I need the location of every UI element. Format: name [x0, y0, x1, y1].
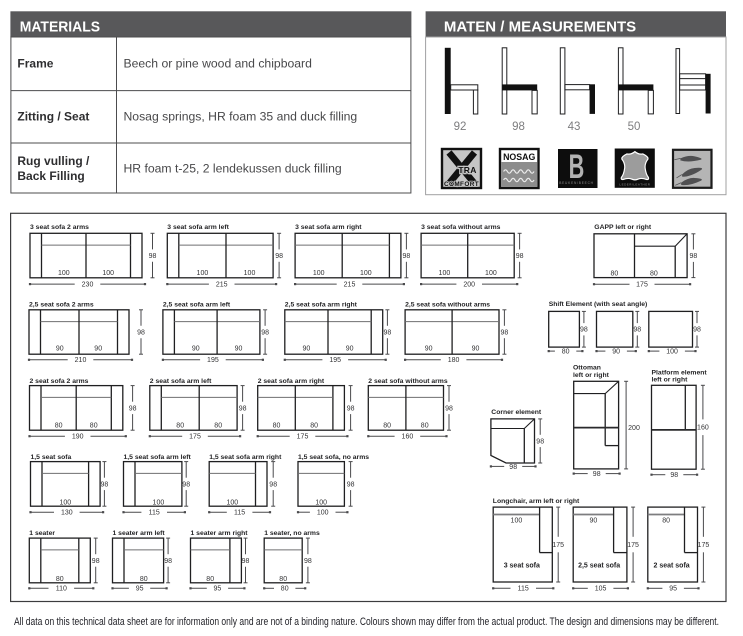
svg-text:100: 100: [59, 500, 71, 507]
svg-text:80: 80: [176, 422, 184, 429]
svg-text:2 seat sofa without arms: 2 seat sofa without arms: [368, 378, 448, 385]
svg-text:195: 195: [207, 357, 219, 364]
svg-text:80: 80: [214, 422, 222, 429]
svg-text:TRA: TRA: [458, 165, 476, 175]
svg-text:1,5 seat sofa, no arms: 1,5 seat sofa, no arms: [298, 454, 369, 461]
svg-text:100: 100: [485, 270, 497, 277]
svg-text:98: 98: [509, 464, 517, 471]
svg-text:100: 100: [102, 270, 114, 277]
svg-text:80: 80: [650, 270, 658, 277]
svg-text:175: 175: [552, 542, 564, 549]
svg-text:3 seat sofa: 3 seat sofa: [504, 562, 540, 569]
svg-text:98: 98: [516, 253, 524, 260]
svg-text:2 seat sofa arm right: 2 seat sofa arm right: [258, 378, 325, 385]
svg-text:215: 215: [344, 282, 356, 289]
svg-text:1 seater arm left: 1 seater arm left: [113, 530, 166, 537]
svg-text:195: 195: [329, 357, 341, 364]
svg-text:100: 100: [439, 270, 451, 277]
svg-text:175: 175: [698, 542, 710, 549]
svg-text:Zitting / Seat: Zitting / Seat: [17, 109, 89, 123]
svg-text:98: 98: [182, 481, 190, 488]
svg-text:Nosag springs, HR foam 35 and: Nosag springs, HR foam 35 and duck filli…: [124, 109, 358, 123]
svg-text:90: 90: [303, 346, 311, 353]
svg-text:43: 43: [568, 121, 581, 133]
svg-text:3 seat sofa arm left: 3 seat sofa arm left: [167, 224, 229, 231]
svg-text:215: 215: [216, 282, 228, 289]
svg-text:98: 98: [536, 438, 544, 445]
svg-text:98: 98: [242, 558, 250, 565]
svg-text:90: 90: [346, 346, 354, 353]
svg-text:Back Filling: Back Filling: [17, 169, 84, 183]
svg-text:180: 180: [448, 357, 460, 364]
svg-text:98: 98: [92, 558, 100, 565]
svg-text:98: 98: [304, 558, 312, 565]
svg-text:2,5 seat sofa without arms: 2,5 seat sofa without arms: [405, 302, 490, 309]
svg-text:98: 98: [693, 327, 701, 334]
svg-text:MATERIALS: MATERIALS: [20, 19, 101, 36]
svg-text:Frame: Frame: [17, 56, 53, 70]
svg-text:90: 90: [192, 346, 200, 353]
svg-text:50: 50: [628, 121, 641, 133]
svg-text:160: 160: [697, 425, 709, 432]
svg-text:190: 190: [72, 434, 84, 441]
svg-text:98: 98: [101, 481, 109, 488]
svg-text:130: 130: [61, 510, 73, 517]
svg-text:NOSAG: NOSAG: [503, 152, 535, 162]
svg-text:100: 100: [153, 500, 165, 507]
svg-text:GAPP left or right: GAPP left or right: [594, 224, 652, 231]
svg-text:115: 115: [234, 510, 245, 517]
svg-text:98: 98: [593, 471, 601, 478]
svg-text:80: 80: [55, 422, 63, 429]
svg-text:Shift Element (with seat angle: Shift Element (with seat angle): [549, 301, 648, 308]
svg-text:2,5 seat sofa arm right: 2,5 seat sofa arm right: [285, 302, 358, 309]
svg-text:100: 100: [317, 510, 329, 517]
svg-text:98: 98: [384, 329, 392, 336]
svg-text:100: 100: [360, 270, 372, 277]
svg-text:1 seater, no arms: 1 seater, no arms: [264, 530, 320, 537]
svg-text:90: 90: [56, 346, 64, 353]
svg-text:115: 115: [518, 586, 529, 593]
svg-text:90: 90: [472, 346, 480, 353]
svg-text:2,5 seat sofa: 2,5 seat sofa: [578, 562, 620, 569]
svg-text:Longchair, arm left or right: Longchair, arm left or right: [493, 498, 580, 505]
svg-text:90: 90: [590, 517, 598, 524]
svg-text:98: 98: [501, 329, 509, 336]
svg-text:98: 98: [580, 327, 588, 334]
svg-text:2,5 seat sofa 2 arms: 2,5 seat sofa 2 arms: [29, 302, 94, 309]
svg-text:1 seater arm right: 1 seater arm right: [191, 530, 249, 537]
svg-text:90: 90: [612, 349, 620, 356]
svg-text:COMFORT: COMFORT: [444, 181, 479, 188]
svg-text:3 seat sofa arm right: 3 seat sofa arm right: [295, 224, 362, 231]
svg-text:80: 80: [273, 422, 281, 429]
svg-text:98: 98: [149, 253, 157, 260]
svg-text:1 seater: 1 seater: [29, 530, 55, 537]
svg-text:Ottoman: Ottoman: [573, 364, 601, 371]
svg-text:98: 98: [129, 405, 137, 412]
svg-text:Rug vulling /: Rug vulling /: [17, 154, 90, 168]
svg-text:105: 105: [595, 586, 607, 593]
svg-text:80: 80: [662, 517, 670, 524]
svg-text:98: 98: [275, 253, 283, 260]
svg-text:98: 98: [164, 558, 172, 565]
svg-text:98: 98: [269, 481, 277, 488]
svg-text:left or right: left or right: [573, 372, 610, 379]
svg-text:80: 80: [140, 576, 148, 583]
svg-text:90: 90: [235, 346, 243, 353]
svg-text:95: 95: [136, 586, 144, 593]
svg-text:100: 100: [244, 270, 256, 277]
svg-text:98: 98: [403, 253, 411, 260]
svg-text:100: 100: [666, 349, 678, 356]
svg-text:80: 80: [281, 586, 289, 593]
svg-text:3 seat sofa without arms: 3 seat sofa without arms: [421, 224, 501, 231]
svg-text:MATEN / MEASUREMENTS: MATEN / MEASUREMENTS: [444, 19, 636, 36]
svg-text:100: 100: [315, 500, 327, 507]
svg-text:210: 210: [75, 357, 87, 364]
svg-text:80: 80: [562, 349, 570, 356]
svg-text:80: 80: [611, 270, 619, 277]
svg-text:175: 175: [189, 434, 201, 441]
svg-text:100: 100: [226, 500, 238, 507]
svg-text:175: 175: [627, 542, 639, 549]
svg-text:160: 160: [402, 434, 414, 441]
svg-text:1,5 seat sofa arm left: 1,5 seat sofa arm left: [124, 454, 192, 461]
svg-text:2,5 seat sofa arm left: 2,5 seat sofa arm left: [163, 302, 231, 309]
svg-text:115: 115: [149, 510, 160, 517]
svg-text:98: 98: [347, 405, 355, 412]
svg-text:HR foam t-25, 2 lendekussen du: HR foam t-25, 2 lendekussen duck filling: [124, 162, 342, 176]
svg-text:90: 90: [425, 346, 433, 353]
svg-text:1,5 seat sofa: 1,5 seat sofa: [31, 454, 72, 461]
svg-text:230: 230: [82, 282, 94, 289]
svg-text:80: 80: [383, 422, 391, 429]
svg-text:98: 98: [633, 327, 641, 334]
svg-text:3 seat sofa 2 arms: 3 seat sofa 2 arms: [30, 224, 89, 231]
svg-text:95: 95: [214, 586, 222, 593]
svg-text:80: 80: [310, 422, 318, 429]
svg-text:Corner element: Corner element: [491, 409, 542, 416]
svg-text:80: 80: [56, 576, 64, 583]
svg-text:100: 100: [197, 270, 209, 277]
svg-text:80: 80: [206, 576, 214, 583]
svg-text:1,5 seat sofa arm right: 1,5 seat sofa arm right: [209, 454, 282, 461]
svg-text:98: 98: [137, 329, 145, 336]
svg-text:2 seat sofa: 2 seat sofa: [654, 562, 690, 569]
svg-text:80: 80: [279, 576, 287, 583]
svg-text:175: 175: [636, 282, 648, 289]
svg-text:Beech or pine wood and chipboa: Beech or pine wood and chipboard: [124, 56, 312, 70]
svg-text:All data on this technical dat: All data on this technical data sheet ar…: [14, 616, 719, 628]
svg-text:95: 95: [669, 586, 677, 593]
svg-text:left or right: left or right: [652, 376, 689, 383]
svg-text:80: 80: [90, 422, 98, 429]
svg-text:98: 98: [512, 121, 525, 133]
svg-text:92: 92: [454, 121, 467, 133]
svg-text:80: 80: [421, 422, 429, 429]
svg-text:BEUKEN/BEECH: BEUKEN/BEECH: [559, 181, 594, 185]
svg-text:100: 100: [313, 270, 325, 277]
svg-text:100: 100: [511, 517, 523, 524]
svg-text:200: 200: [628, 425, 640, 432]
svg-text:200: 200: [463, 282, 475, 289]
svg-text:98: 98: [670, 472, 678, 479]
svg-text:90: 90: [94, 346, 102, 353]
svg-text:98: 98: [690, 253, 698, 260]
svg-text:2 seat sofa arm left: 2 seat sofa arm left: [150, 378, 212, 385]
svg-text:175: 175: [297, 434, 309, 441]
svg-text:98: 98: [239, 405, 247, 412]
svg-text:98: 98: [347, 481, 355, 488]
svg-text:100: 100: [58, 270, 70, 277]
svg-text:110: 110: [56, 586, 67, 593]
svg-text:98: 98: [261, 329, 269, 336]
svg-text:98: 98: [445, 405, 453, 412]
svg-text:2 seat sofa 2 arms: 2 seat sofa 2 arms: [30, 378, 89, 385]
svg-text:LEDER/LEATHER: LEDER/LEATHER: [619, 182, 650, 186]
